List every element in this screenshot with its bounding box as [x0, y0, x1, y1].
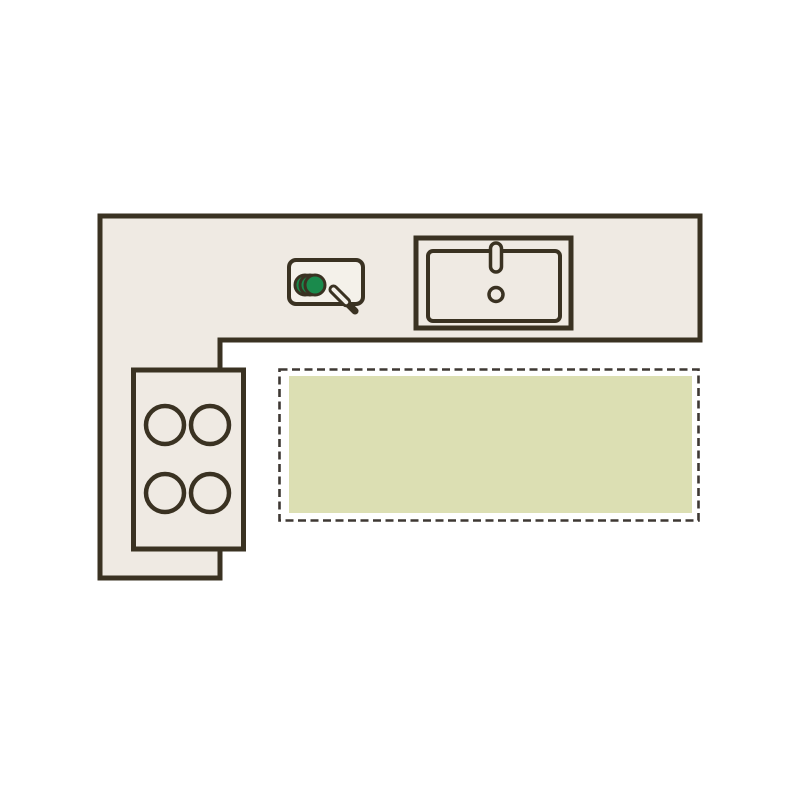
knife-handle	[349, 305, 355, 311]
stove[interactable]	[134, 370, 244, 549]
vegetable-slice-3	[305, 275, 325, 295]
faucet-icon	[491, 243, 502, 272]
vegetable-slices-icon	[295, 275, 325, 295]
placement-zone-fill	[289, 376, 692, 513]
floor-plan-canvas	[0, 0, 800, 800]
sink[interactable]	[416, 238, 571, 328]
placement-zone[interactable]	[280, 370, 699, 521]
cutting-board[interactable]	[289, 260, 363, 314]
floor-plan-svg	[0, 0, 800, 800]
stove-body	[134, 370, 244, 549]
